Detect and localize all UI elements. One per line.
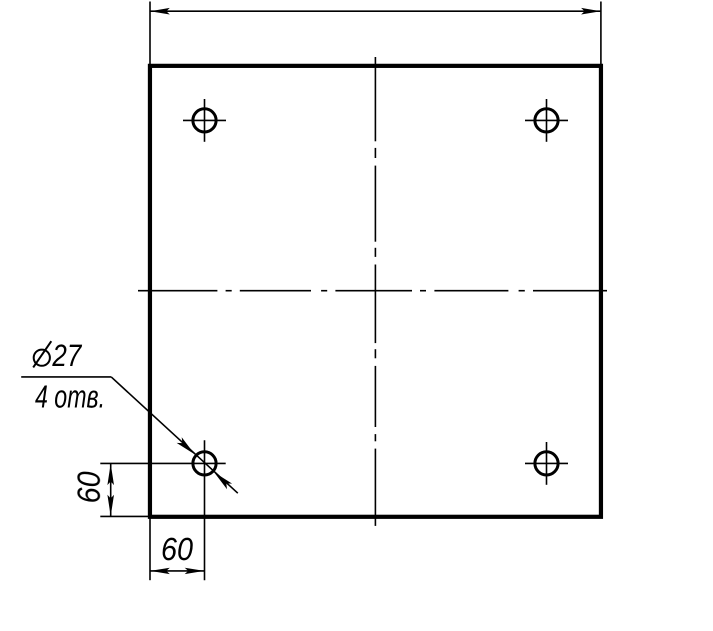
svg-text:4 отв.: 4 отв. <box>35 378 105 414</box>
svg-text:60: 60 <box>71 471 107 503</box>
svg-text:60: 60 <box>161 531 193 567</box>
svg-text:27: 27 <box>52 338 83 373</box>
